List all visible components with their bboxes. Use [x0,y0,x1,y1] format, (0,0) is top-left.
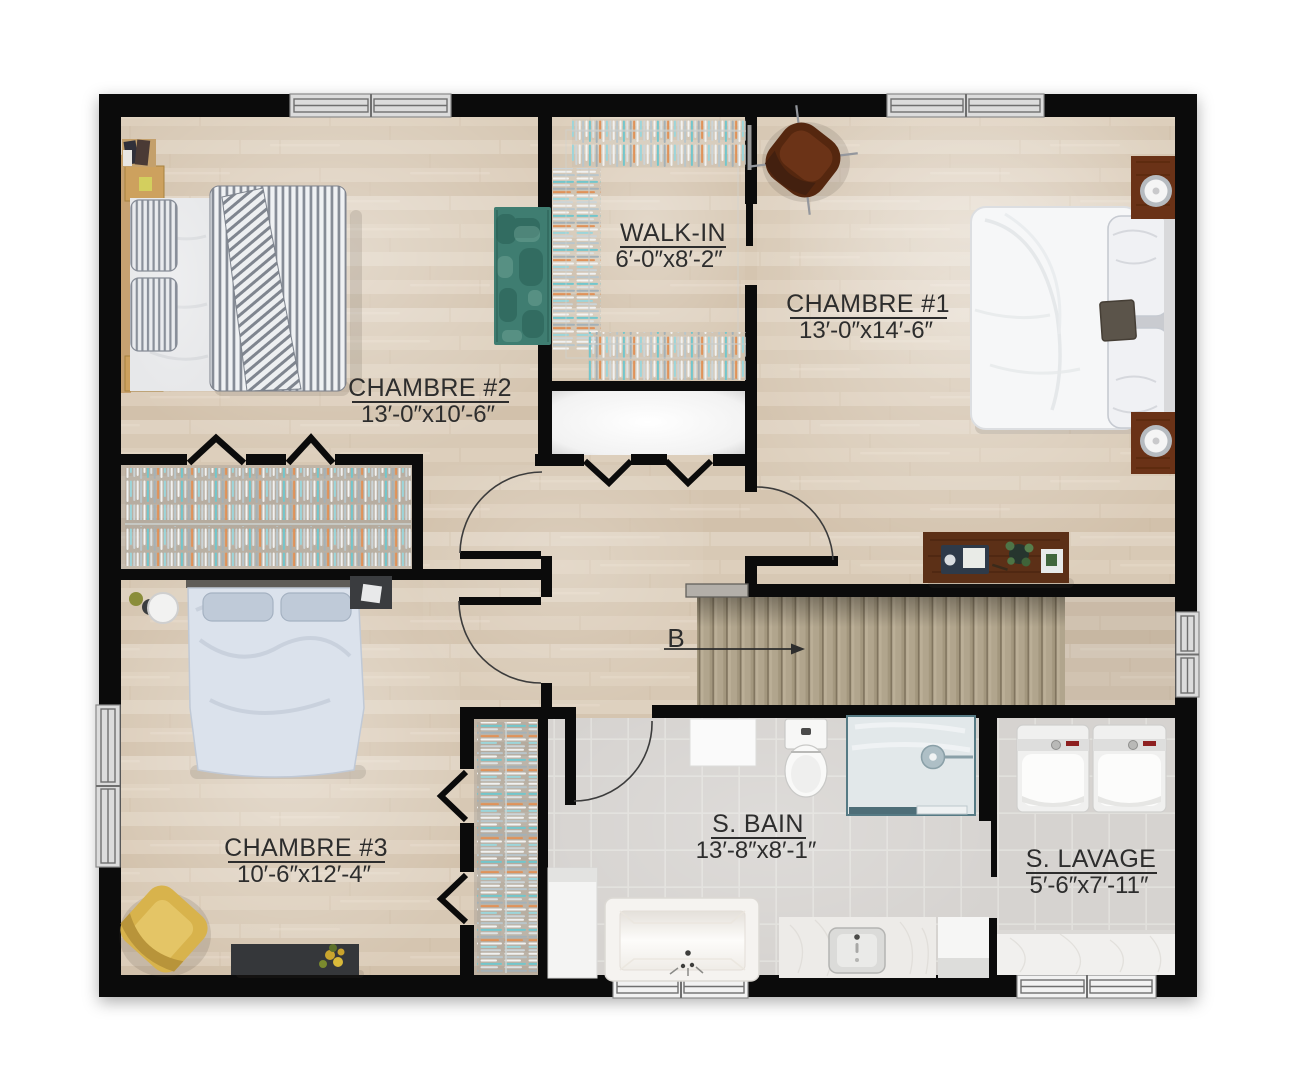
svg-text:WALK-IN: WALK-IN [620,219,726,247]
svg-text:5′-6″x7′-11″: 5′-6″x7′-11″ [1030,872,1149,899]
svg-text:13′-0″x14′-6″: 13′-0″x14′-6″ [799,317,934,344]
svg-text:10′-6″x12′-4″: 10′-6″x12′-4″ [237,861,372,888]
svg-text:13′-0″x10′-6″: 13′-0″x10′-6″ [361,401,496,428]
svg-text:CHAMBRE #1: CHAMBRE #1 [786,290,950,318]
svg-text:S. BAIN: S. BAIN [712,810,804,838]
svg-text:6′-0″x8′-2″: 6′-0″x8′-2″ [615,246,723,273]
svg-text:CHAMBRE #2: CHAMBRE #2 [348,374,512,402]
svg-text:13′-8″x8′-1″: 13′-8″x8′-1″ [696,837,817,864]
svg-text:CHAMBRE #3: CHAMBRE #3 [224,834,388,862]
svg-text:B: B [667,623,684,653]
svg-text:S. LAVAGE: S. LAVAGE [1026,845,1157,873]
